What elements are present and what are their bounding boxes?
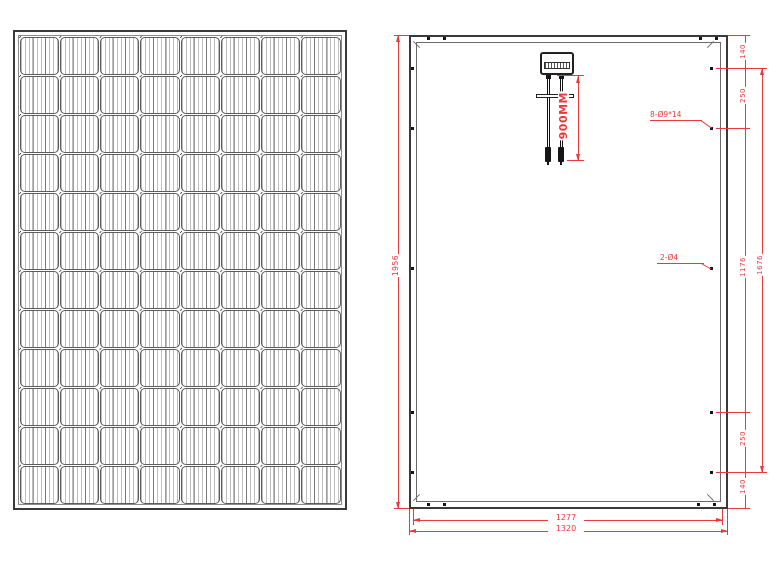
solar-cell bbox=[181, 115, 220, 153]
leader-line bbox=[650, 120, 702, 121]
solar-cell bbox=[261, 76, 300, 114]
dim-arrow bbox=[760, 68, 764, 75]
solar-cell bbox=[140, 310, 179, 348]
drain-hole-marker bbox=[443, 37, 446, 40]
solar-cell bbox=[181, 193, 220, 231]
solar-cell bbox=[100, 388, 139, 426]
front-view-frame bbox=[13, 30, 347, 510]
dim-label-hole-span: 1676 bbox=[757, 254, 764, 276]
solar-cell bbox=[261, 115, 300, 153]
solar-cell bbox=[181, 349, 220, 387]
solar-cell bbox=[301, 349, 340, 387]
solar-cell bbox=[181, 76, 220, 114]
solar-cell bbox=[261, 427, 300, 465]
dim-label-height-total: 1956 bbox=[392, 254, 400, 277]
dim-ext-line bbox=[716, 128, 750, 129]
solar-cell bbox=[20, 37, 59, 75]
solar-cell bbox=[261, 154, 300, 192]
solar-cell bbox=[60, 232, 99, 270]
solar-cell bbox=[181, 388, 220, 426]
dim-label-hole-pitch-bottom: 250 bbox=[740, 430, 747, 447]
solar-cell bbox=[181, 232, 220, 270]
mc4-connector bbox=[545, 147, 551, 162]
dim-ext-line bbox=[413, 509, 414, 525]
solar-cell bbox=[221, 232, 260, 270]
mc4-connector-tip bbox=[547, 162, 549, 165]
solar-cell bbox=[60, 76, 99, 114]
solar-cell bbox=[261, 310, 300, 348]
solar-cell bbox=[181, 154, 220, 192]
dim-label-width-inner: 1277 bbox=[548, 514, 584, 522]
solar-cell bbox=[301, 193, 340, 231]
solar-cell bbox=[100, 115, 139, 153]
mounting-hole-marker bbox=[411, 127, 414, 130]
dim-ext-line bbox=[567, 160, 584, 161]
dim-ext-line bbox=[557, 75, 584, 76]
solar-cell bbox=[20, 349, 59, 387]
solar-cell bbox=[301, 388, 340, 426]
ground-hole-marker bbox=[411, 267, 414, 270]
solar-cell bbox=[261, 349, 300, 387]
solar-cell bbox=[20, 388, 59, 426]
mc4-connector-tip bbox=[560, 162, 562, 165]
solar-cell bbox=[140, 37, 179, 75]
dim-label-width-total: 1320 bbox=[548, 525, 584, 533]
mounting-hole-marker bbox=[411, 411, 414, 414]
solar-cell bbox=[140, 427, 179, 465]
solar-cell bbox=[140, 193, 179, 231]
solar-cell bbox=[221, 37, 260, 75]
solar-cell bbox=[301, 271, 340, 309]
solar-cell bbox=[261, 193, 300, 231]
solar-cell bbox=[181, 310, 220, 348]
drain-hole-marker bbox=[697, 503, 700, 506]
solar-cell bbox=[140, 271, 179, 309]
solar-cell bbox=[60, 193, 99, 231]
solar-cell bbox=[221, 310, 260, 348]
drain-hole-marker bbox=[715, 37, 718, 40]
solar-cell bbox=[261, 37, 300, 75]
dim-ext-line bbox=[716, 472, 767, 473]
dim-ext-line bbox=[716, 68, 767, 69]
dim-ext-line bbox=[394, 508, 409, 509]
solar-cell bbox=[301, 427, 340, 465]
mounting-hole-marker bbox=[710, 67, 713, 70]
solar-cell bbox=[301, 466, 340, 504]
dim-arrow bbox=[716, 518, 723, 522]
dim-ext-line bbox=[716, 412, 750, 413]
dim-label-hole-pitch-top: 250 bbox=[740, 87, 747, 104]
solar-cell bbox=[20, 232, 59, 270]
dim-label-cable-length: 900MM bbox=[558, 91, 569, 140]
solar-cell bbox=[100, 349, 139, 387]
solar-cell bbox=[301, 310, 340, 348]
solar-cell bbox=[20, 427, 59, 465]
solar-cell bbox=[301, 154, 340, 192]
solar-cell bbox=[261, 388, 300, 426]
solar-cell bbox=[60, 115, 99, 153]
solar-cell bbox=[181, 271, 220, 309]
cell-grid bbox=[18, 35, 342, 505]
leader-line bbox=[657, 263, 704, 264]
solar-cell bbox=[20, 76, 59, 114]
solar-cell bbox=[181, 427, 220, 465]
solar-cell bbox=[20, 271, 59, 309]
solar-cell bbox=[181, 466, 220, 504]
solar-cell bbox=[221, 154, 260, 192]
solar-cell bbox=[100, 271, 139, 309]
solar-cell bbox=[60, 349, 99, 387]
drain-hole-marker bbox=[427, 37, 430, 40]
solar-cell bbox=[100, 193, 139, 231]
solar-cell bbox=[140, 154, 179, 192]
dim-ext-line bbox=[728, 35, 750, 36]
solar-cell bbox=[221, 427, 260, 465]
dim-label-edge-to-hole-bottom: 140 bbox=[740, 478, 747, 495]
solar-cell bbox=[221, 466, 260, 504]
solar-panel-drawing: 1956 140 250 1176 250 140 1676 8-Ø9*14 2… bbox=[0, 0, 779, 573]
solar-cell bbox=[20, 193, 59, 231]
solar-cell bbox=[100, 427, 139, 465]
solar-cell bbox=[221, 349, 260, 387]
solar-cell bbox=[301, 37, 340, 75]
drain-hole-marker bbox=[443, 503, 446, 506]
dim-ext-line bbox=[722, 509, 723, 525]
solar-cell bbox=[20, 310, 59, 348]
solar-cell bbox=[140, 349, 179, 387]
cable bbox=[547, 79, 550, 147]
solar-cell bbox=[20, 154, 59, 192]
dim-arrow bbox=[413, 518, 420, 522]
solar-cell bbox=[60, 466, 99, 504]
solar-cell bbox=[261, 232, 300, 270]
mounting-hole-marker bbox=[710, 411, 713, 414]
solar-cell bbox=[301, 232, 340, 270]
drain-hole-marker bbox=[713, 503, 716, 506]
mounting-hole-marker bbox=[710, 471, 713, 474]
solar-cell bbox=[100, 76, 139, 114]
solar-cell bbox=[140, 466, 179, 504]
solar-cell bbox=[100, 310, 139, 348]
dim-ext-line bbox=[394, 35, 409, 36]
solar-cell bbox=[181, 37, 220, 75]
solar-cell bbox=[140, 232, 179, 270]
solar-cell bbox=[100, 466, 139, 504]
mounting-hole-marker bbox=[411, 471, 414, 474]
solar-cell bbox=[301, 115, 340, 153]
mc4-connector bbox=[558, 147, 564, 162]
solar-cell bbox=[20, 115, 59, 153]
solar-cell bbox=[100, 154, 139, 192]
solar-cell bbox=[60, 427, 99, 465]
junction-box-label-slot bbox=[544, 62, 570, 69]
solar-cell bbox=[100, 37, 139, 75]
solar-cell bbox=[100, 232, 139, 270]
drain-hole-marker bbox=[699, 37, 702, 40]
dim-arrow bbox=[409, 529, 416, 533]
solar-cell bbox=[60, 271, 99, 309]
solar-cell bbox=[60, 37, 99, 75]
solar-cell bbox=[261, 466, 300, 504]
solar-cell bbox=[60, 388, 99, 426]
solar-cell bbox=[60, 154, 99, 192]
dim-arrow bbox=[396, 35, 400, 42]
drain-hole-marker bbox=[427, 503, 430, 506]
ground-holes-callout: 2-Ø4 bbox=[660, 254, 678, 262]
dim-label-hole-pitch-middle: 1176 bbox=[740, 256, 747, 278]
mounting-hole-marker bbox=[411, 67, 414, 70]
mounting-holes-callout: 8-Ø9*14 bbox=[650, 111, 681, 119]
solar-cell bbox=[221, 193, 260, 231]
solar-cell bbox=[60, 310, 99, 348]
solar-cell bbox=[140, 76, 179, 114]
solar-cell bbox=[140, 115, 179, 153]
solar-cell bbox=[221, 115, 260, 153]
solar-cell bbox=[140, 388, 179, 426]
solar-cell bbox=[221, 271, 260, 309]
dim-line-cable bbox=[578, 76, 579, 161]
solar-cell bbox=[301, 76, 340, 114]
solar-cell bbox=[20, 466, 59, 504]
dim-label-edge-to-hole-top: 140 bbox=[740, 43, 747, 60]
solar-cell bbox=[221, 388, 260, 426]
solar-cell bbox=[221, 76, 260, 114]
solar-cell bbox=[261, 271, 300, 309]
dim-arrow bbox=[721, 529, 728, 533]
dim-ext-line bbox=[728, 508, 750, 509]
dim-arrow bbox=[576, 76, 580, 83]
